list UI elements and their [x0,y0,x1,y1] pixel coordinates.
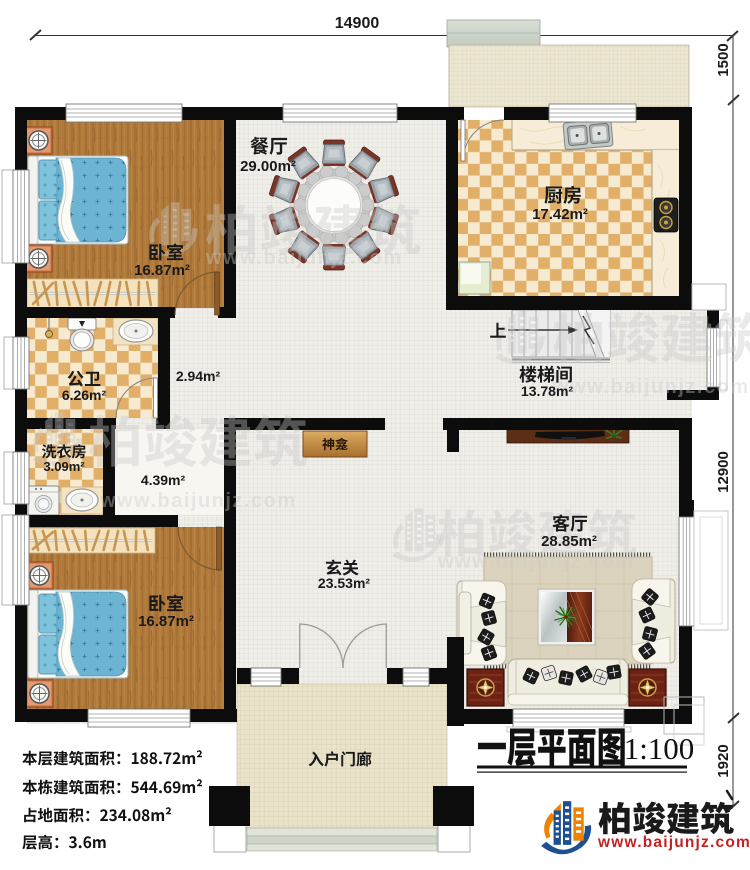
svg-text:1:100: 1:100 [624,731,695,766]
svg-text:14900: 14900 [335,15,380,32]
svg-text:3.09m²: 3.09m² [43,459,85,474]
svg-text:1920: 1920 [715,744,732,777]
svg-text:1500: 1500 [715,43,732,76]
svg-text:12900: 12900 [715,451,732,493]
svg-text:www.baijunjz.com: www.baijunjz.com [597,834,750,851]
svg-text:28.85m²: 28.85m² [541,533,597,550]
svg-text:16.87m²: 16.87m² [138,613,194,630]
svg-text:13.78m²: 13.78m² [521,383,573,399]
svg-text:16.87m²: 16.87m² [134,262,190,279]
svg-text:www.baijunjz.com: www.baijunjz.com [437,551,635,573]
svg-text:29.00m²: 29.00m² [240,158,296,175]
svg-text:23.53m²: 23.53m² [318,575,370,591]
svg-text:www.baijunjz.com: www.baijunjz.com [205,247,403,269]
svg-text:6.26m²: 6.26m² [62,387,107,403]
svg-text:www.baijunjz.com: www.baijunjz.com [99,490,297,512]
svg-text:4.39m²: 4.39m² [141,472,186,488]
svg-text:2.94m²: 2.94m² [176,368,221,384]
svg-text:www.baijunjz.com: www.baijunjz.com [552,376,750,398]
svg-text:17.42m²: 17.42m² [532,206,588,223]
